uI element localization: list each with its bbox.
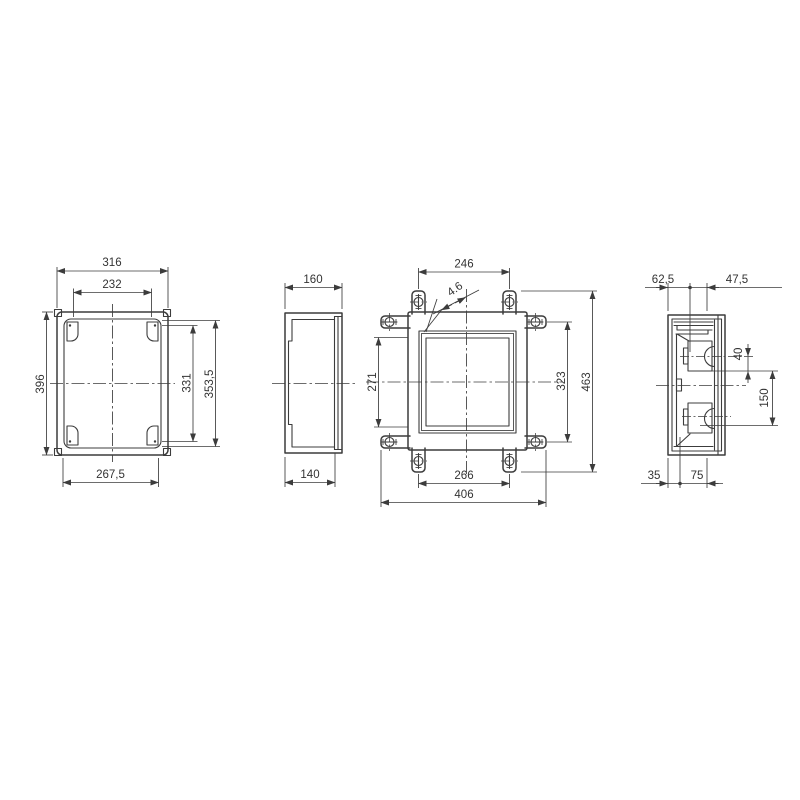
section-clip bbox=[684, 348, 689, 364]
dim-back-height-total: 463 bbox=[581, 372, 593, 391]
section-clip bbox=[684, 409, 689, 425]
dim-back-fix-bottom: 266 bbox=[454, 470, 473, 482]
dim-front-height-outer: 396 bbox=[35, 374, 47, 393]
section-pillar bbox=[688, 403, 712, 433]
front-screw-mark bbox=[154, 440, 156, 442]
dim-section-bottom-b: 75 bbox=[691, 470, 704, 482]
dim-section-top-a: 62,5 bbox=[652, 274, 674, 286]
front-screw-mark bbox=[69, 440, 71, 442]
dim-section-rail-span: 150 bbox=[759, 388, 771, 407]
technical-drawing-canvas: 316 232 396 331 353,5 267,5 bbox=[0, 0, 800, 800]
dim-side-depth-body: 140 bbox=[300, 469, 319, 481]
dim-back-fix-top: 246 bbox=[454, 259, 473, 271]
dim-front-width-inner: 232 bbox=[102, 279, 121, 291]
dim-section-bottom-a: 35 bbox=[648, 470, 661, 482]
back-view: 4.6 246 271 323 463 266 406 bbox=[366, 259, 597, 508]
side-outer-outline bbox=[285, 313, 342, 453]
hole-callout: 4.6 bbox=[424, 280, 479, 332]
dim-back-fix-right: 323 bbox=[556, 371, 568, 390]
front-screw-mark bbox=[69, 324, 71, 326]
dim-back-hole-dia: 4.6 bbox=[445, 280, 465, 299]
section-pillar bbox=[688, 341, 712, 371]
front-view: 316 232 396 331 353,5 267,5 bbox=[35, 257, 220, 487]
drawing-svg: 316 232 396 331 353,5 267,5 bbox=[0, 0, 800, 800]
front-screw-mark bbox=[154, 324, 156, 326]
dim-front-width-bottom: 267,5 bbox=[96, 469, 125, 481]
front-screw-boss bbox=[67, 322, 78, 341]
side-view: 160 140 bbox=[272, 274, 355, 487]
dim-section-rail-offset: 40 bbox=[733, 348, 745, 361]
section-view: 62,5 47,5 40 150 35 75 bbox=[641, 274, 782, 488]
front-screw-boss bbox=[147, 426, 158, 445]
dim-front-width-outer: 316 bbox=[102, 257, 121, 269]
section-wall-nub bbox=[677, 379, 682, 391]
section-top-shelf bbox=[674, 322, 713, 341]
front-screw-boss bbox=[67, 426, 78, 445]
dim-side-depth-outer: 160 bbox=[303, 274, 322, 286]
dim-back-left-opening: 271 bbox=[367, 372, 379, 391]
dim-front-height-recess: 353,5 bbox=[204, 370, 216, 399]
dim-section-top-b: 47,5 bbox=[726, 274, 748, 286]
dim-front-height-inner: 331 bbox=[182, 373, 194, 392]
front-screw-boss bbox=[147, 322, 158, 341]
dim-back-width-total: 406 bbox=[454, 489, 473, 501]
